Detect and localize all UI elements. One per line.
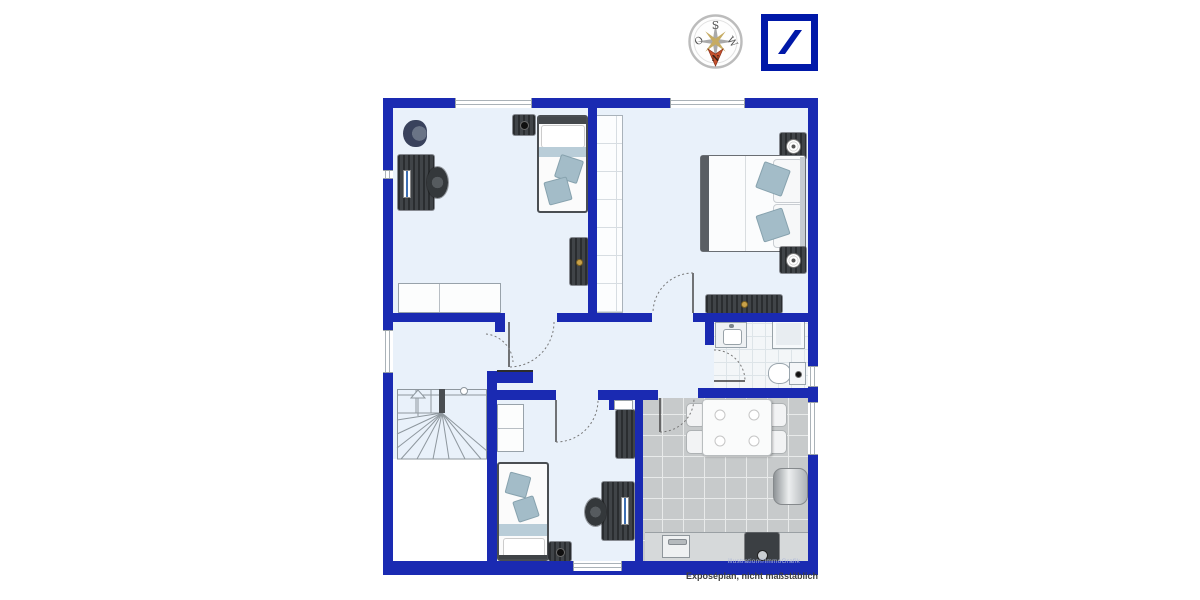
cushion — [512, 495, 540, 523]
wall-niche — [614, 400, 633, 410]
table-lamp — [786, 253, 801, 268]
refrigerator — [773, 468, 808, 505]
page: { "captions": { "credit": "illustration©… — [0, 0, 1200, 600]
wall-hall-top-mid — [557, 313, 652, 322]
window — [455, 98, 532, 108]
desk-monitor — [622, 498, 628, 524]
sideboard-divider — [439, 284, 440, 312]
bed-headboard — [539, 117, 586, 124]
window — [808, 366, 818, 387]
table-lamp — [786, 139, 801, 154]
compass-label-north: N — [712, 54, 720, 64]
oven-handle — [668, 539, 687, 545]
wardrobe — [616, 410, 635, 458]
nightstand — [549, 542, 571, 561]
wall-stub — [495, 322, 505, 332]
toilet-flush — [795, 371, 802, 378]
bed-duvet-fold — [745, 156, 746, 251]
dining-table — [702, 399, 772, 456]
nightstand-knob — [520, 121, 529, 130]
wardrobe-divider — [616, 116, 617, 312]
double-bed — [700, 155, 806, 252]
desk-monitor — [404, 171, 410, 197]
window — [670, 98, 745, 108]
wall-hall-bottom-a — [487, 390, 556, 400]
wall-stairwell-right — [487, 371, 497, 561]
bed-blanket-band — [499, 524, 547, 536]
bed-pillow — [541, 125, 585, 148]
nightstand — [780, 247, 806, 273]
wall-outer-top — [383, 98, 818, 108]
floor-stairwell-void — [393, 459, 487, 561]
sideboard — [398, 283, 501, 313]
bed-headboard — [800, 157, 805, 249]
wall-hall-top-right — [693, 313, 808, 322]
wall-kitchen-top — [698, 388, 808, 398]
wall-hall-bottom-b — [598, 390, 658, 400]
wall-hall-top-left — [393, 313, 505, 322]
office-chair — [427, 167, 448, 198]
floorplan — [383, 98, 818, 575]
wall-bedroom-divider — [588, 108, 597, 322]
bed-foot-edge — [701, 156, 709, 251]
shower — [772, 319, 805, 349]
compass-rose: S O W N — [687, 13, 744, 70]
sink-basin — [723, 329, 742, 345]
cooktop — [745, 533, 779, 561]
desk — [602, 482, 634, 540]
bed-headboard — [499, 555, 547, 559]
dresser — [706, 295, 782, 313]
wall-outer-right — [808, 98, 818, 575]
cabinet-divider — [498, 428, 523, 429]
dresser-knob — [576, 259, 583, 266]
oven — [662, 535, 690, 558]
nightstand — [513, 115, 535, 135]
armchair — [403, 120, 427, 147]
toilet — [768, 363, 791, 384]
sink-faucet — [729, 324, 734, 328]
window — [808, 402, 818, 455]
logo-slash-icon — [768, 21, 811, 64]
window-small — [383, 170, 393, 179]
plan-disclaimer: Exposéplan, nicht maßstäblich — [640, 571, 818, 581]
dresser-knob — [741, 301, 748, 308]
wardrobe — [597, 115, 623, 313]
wall-bathroom-left — [705, 322, 714, 345]
illustration-credit: illustration©ImmoGrafik — [660, 558, 800, 565]
dresser — [570, 238, 588, 285]
single-bed — [537, 115, 588, 213]
cabinet — [497, 404, 524, 452]
office-chair — [585, 498, 606, 526]
window — [573, 561, 622, 571]
nightstand-knob — [556, 548, 565, 557]
single-bed — [497, 462, 549, 561]
bathroom-sink — [715, 322, 747, 348]
toilet-tank — [789, 362, 806, 385]
deutsche-bank-logo — [761, 14, 818, 71]
wall-hall-partition — [497, 370, 533, 383]
window — [383, 330, 393, 373]
cushion — [505, 472, 532, 499]
wall-kitchen-left — [635, 400, 643, 561]
compass-label-south: S — [712, 19, 720, 32]
